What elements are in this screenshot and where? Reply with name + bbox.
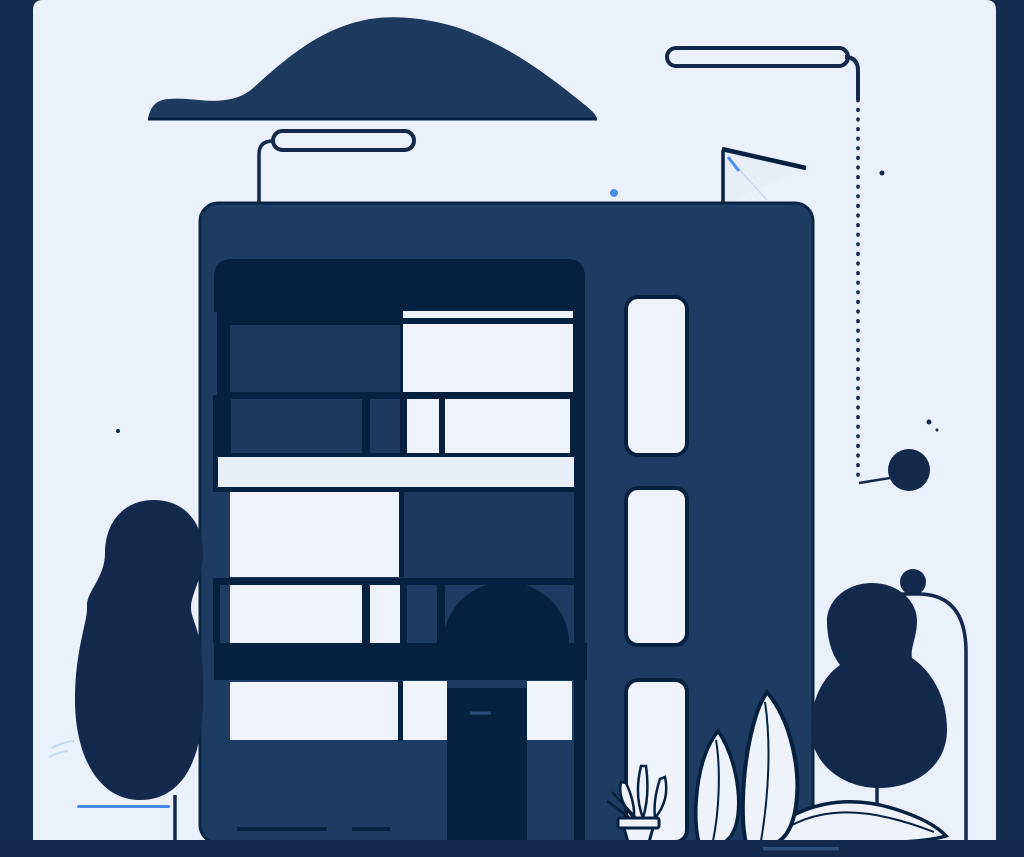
storefront-left-window bbox=[230, 682, 398, 740]
window-row3-left-pane bbox=[230, 492, 400, 577]
speck-1 bbox=[880, 171, 885, 176]
window-row1-sill bbox=[403, 311, 573, 318]
balcony1-white-band bbox=[218, 457, 582, 487]
entrance-door bbox=[447, 688, 527, 843]
building-illustration bbox=[0, 0, 1024, 857]
tree-right-bump bbox=[900, 569, 926, 595]
ground-accent-line bbox=[763, 847, 839, 851]
entrance-side-window-right bbox=[527, 681, 572, 740]
window-row3-divider bbox=[399, 492, 404, 577]
illustration-stage bbox=[0, 0, 1024, 857]
tower-window-2 bbox=[626, 488, 687, 645]
speck-2 bbox=[927, 420, 932, 425]
balcony1-band-edge bbox=[213, 487, 585, 492]
entrance-side-window-left bbox=[403, 681, 447, 740]
balcony1-pane-2 bbox=[370, 399, 400, 453]
balcony2-dark-band bbox=[214, 643, 587, 680]
roof-awning bbox=[214, 259, 585, 312]
pot-body bbox=[624, 828, 653, 842]
speck-4 bbox=[116, 429, 120, 433]
balcony1-pane-1 bbox=[231, 399, 362, 453]
balcony2-post-2 bbox=[400, 585, 407, 643]
storefront-divider bbox=[398, 681, 403, 741]
blue-dot bbox=[610, 189, 618, 197]
window-row3-right-pane bbox=[404, 492, 574, 577]
balcony2-left-post bbox=[213, 578, 220, 643]
hanging-ball bbox=[888, 449, 930, 491]
balcony2-rail bbox=[213, 578, 585, 585]
balcony2-pane-1 bbox=[230, 585, 362, 643]
balcony1-pane-3 bbox=[407, 399, 439, 453]
balcony1-pane-4 bbox=[445, 399, 570, 453]
speck-3 bbox=[936, 429, 939, 432]
ground-bar bbox=[0, 840, 1024, 857]
lamp-tube-right bbox=[667, 48, 848, 66]
section-divider-column bbox=[574, 311, 585, 841]
balcony2-post-1 bbox=[362, 585, 370, 643]
window-row1-right-pane bbox=[403, 324, 573, 392]
lamp-tube-left bbox=[273, 131, 414, 150]
potted-plant-blade-1 bbox=[638, 766, 648, 818]
window-row1-left-pane bbox=[230, 325, 400, 392]
balcony2-pane-2 bbox=[370, 585, 400, 643]
blue-ground-line bbox=[77, 805, 170, 808]
tower-window-1 bbox=[626, 297, 687, 455]
